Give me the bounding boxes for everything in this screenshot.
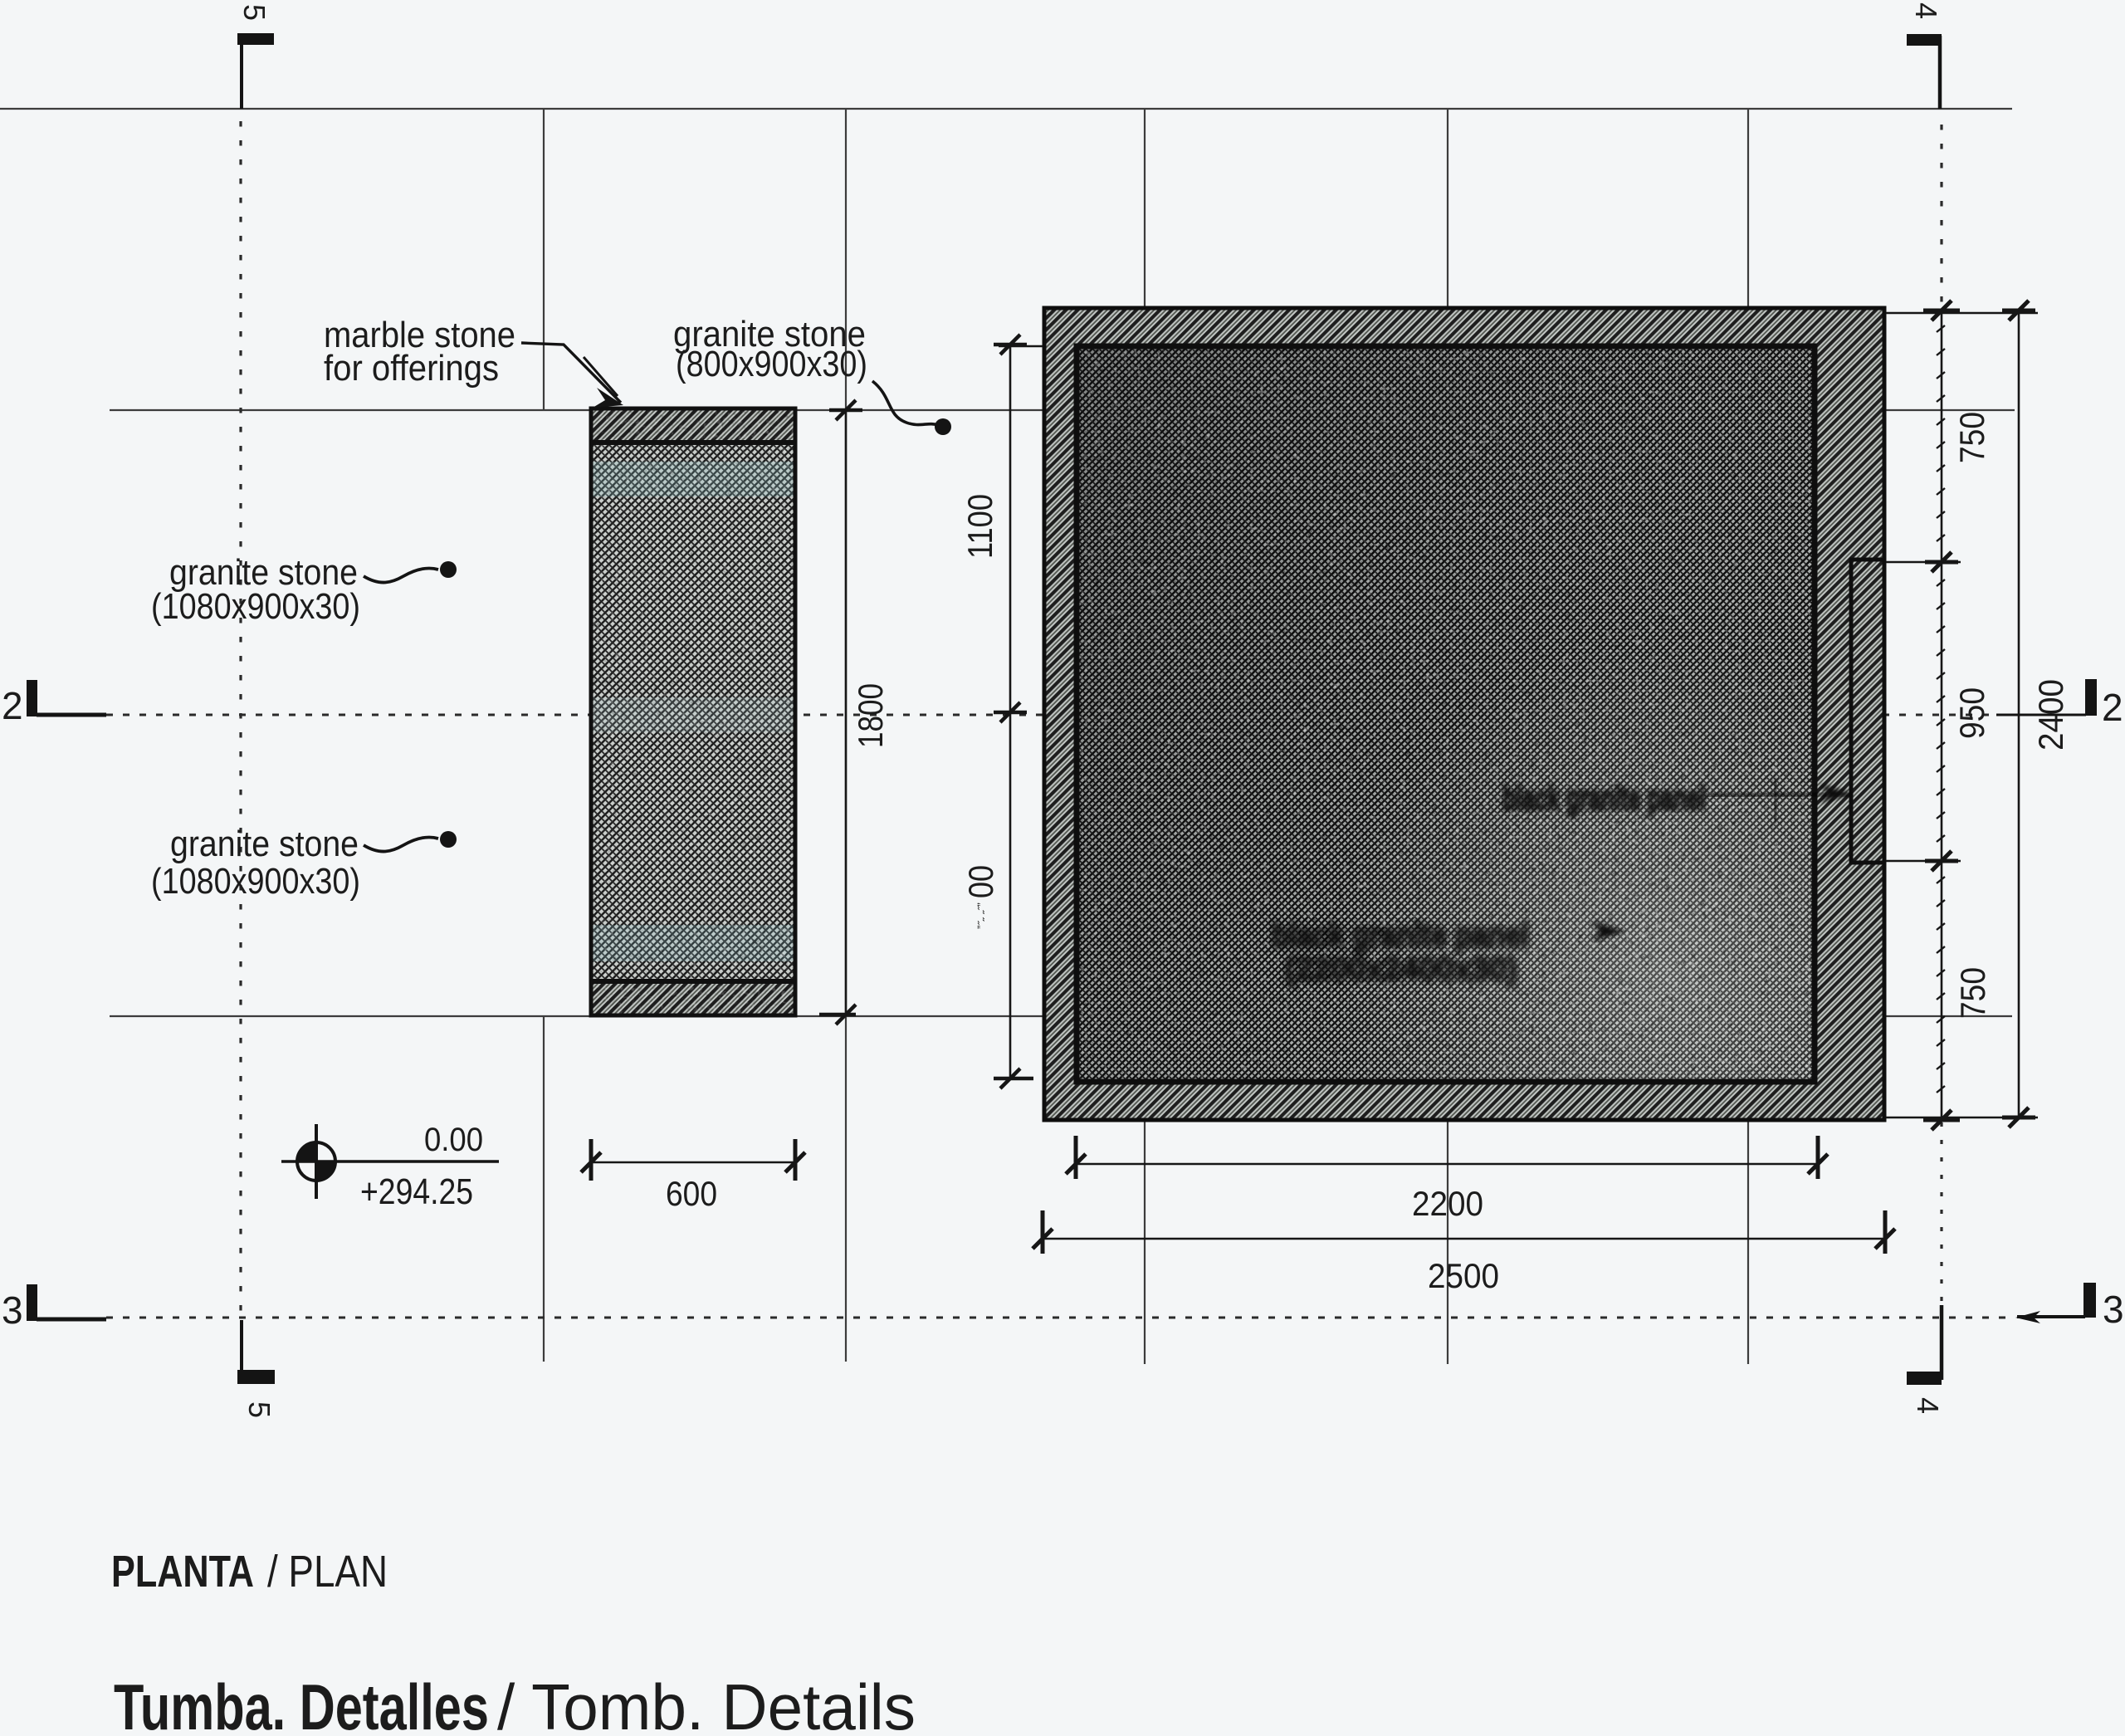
svg-text:5: 5	[242, 1401, 276, 1418]
svg-text:5: 5	[237, 4, 271, 21]
svg-text:4: 4	[1909, 2, 1943, 19]
svg-text:2400: 2400	[2031, 679, 2070, 751]
svg-text:(1080x900x30): (1080x900x30)	[151, 861, 360, 902]
svg-text:00: 00	[961, 865, 1000, 898]
svg-text:750: 750	[1953, 967, 1992, 1019]
svg-text:Tumba. Detalles: Tumba. Detalles	[114, 1670, 489, 1736]
svg-text:black granite panel: black granite panel	[1272, 916, 1529, 954]
svg-text:(2200x2400x30): (2200x2400x30)	[1285, 951, 1517, 987]
svg-text:/ PLAN: / PLAN	[267, 1547, 388, 1597]
svg-text:PLANTA: PLANTA	[111, 1547, 254, 1597]
svg-text:(1080x900x30): (1080x900x30)	[151, 586, 360, 627]
svg-text:950: 950	[1952, 687, 1991, 739]
svg-text:4: 4	[1911, 1397, 1945, 1414]
svg-text:1800: 1800	[851, 683, 890, 748]
svg-text:ˮ˝˶ ˶˝ˮ: ˮ˝˶ ˶˝ˮ	[975, 902, 989, 929]
svg-text:2: 2	[2102, 686, 2123, 729]
svg-text:2500: 2500	[1428, 1256, 1499, 1295]
svg-text:750: 750	[1952, 412, 1991, 463]
svg-text:/ Tomb. Details: / Tomb. Details	[497, 1670, 916, 1736]
svg-text:3: 3	[2, 1289, 23, 1332]
svg-text:for offerings: for offerings	[324, 348, 499, 389]
svg-text:(800x900x30): (800x900x30)	[676, 344, 867, 384]
svg-text:1100: 1100	[960, 494, 999, 559]
svg-text:2: 2	[2, 684, 23, 727]
svg-text:3: 3	[2103, 1288, 2124, 1331]
svg-text:2200: 2200	[1412, 1184, 1483, 1223]
svg-text:+294.25: +294.25	[360, 1171, 473, 1212]
svg-text:600: 600	[666, 1174, 717, 1213]
svg-text:0.00: 0.00	[424, 1122, 483, 1158]
svg-text:black granite panel: black granite panel	[1502, 779, 1706, 817]
svg-text:granite stone: granite stone	[170, 824, 359, 864]
